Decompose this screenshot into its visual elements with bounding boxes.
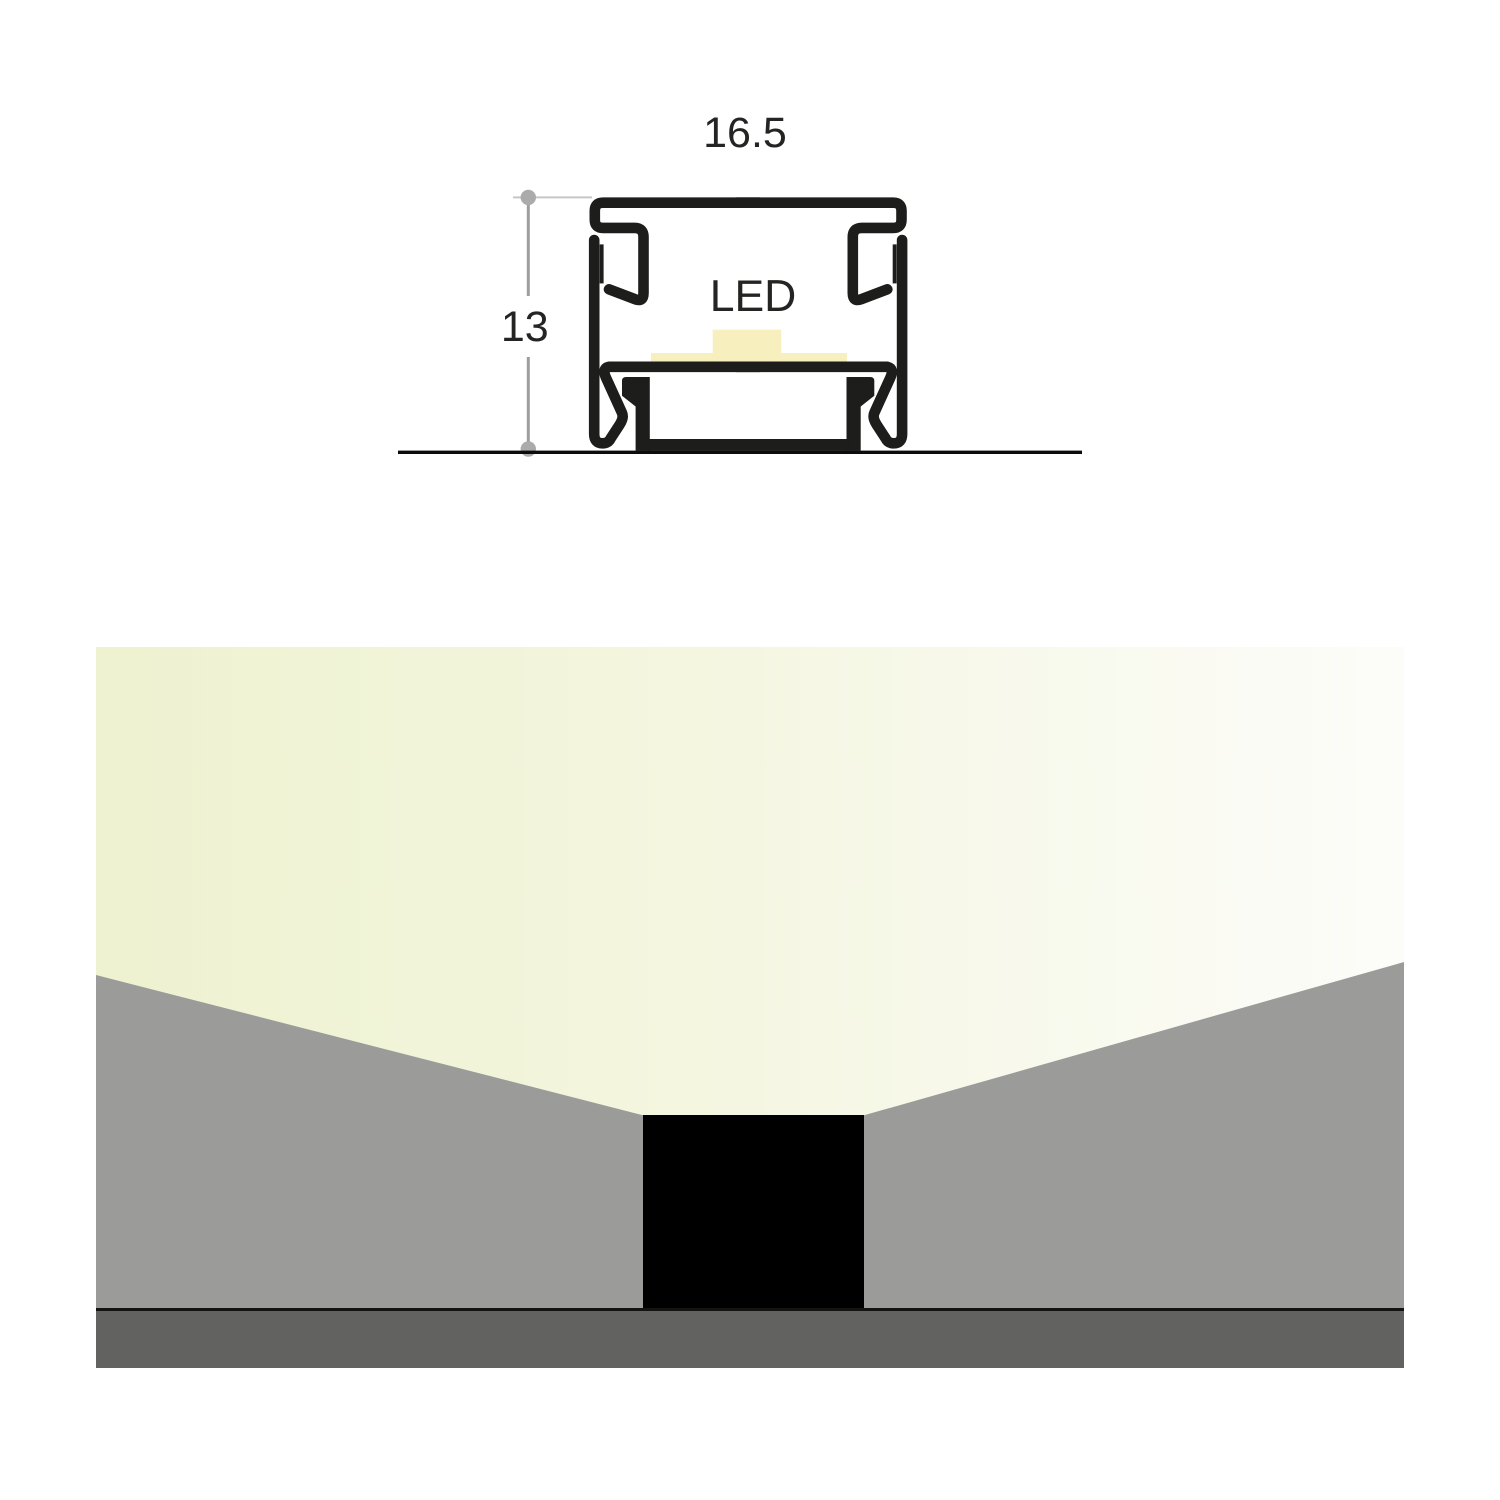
svg-text:13: 13 bbox=[501, 303, 549, 351]
svg-text:16.5: 16.5 bbox=[703, 109, 787, 157]
svg-text:LED: LED bbox=[710, 272, 797, 321]
